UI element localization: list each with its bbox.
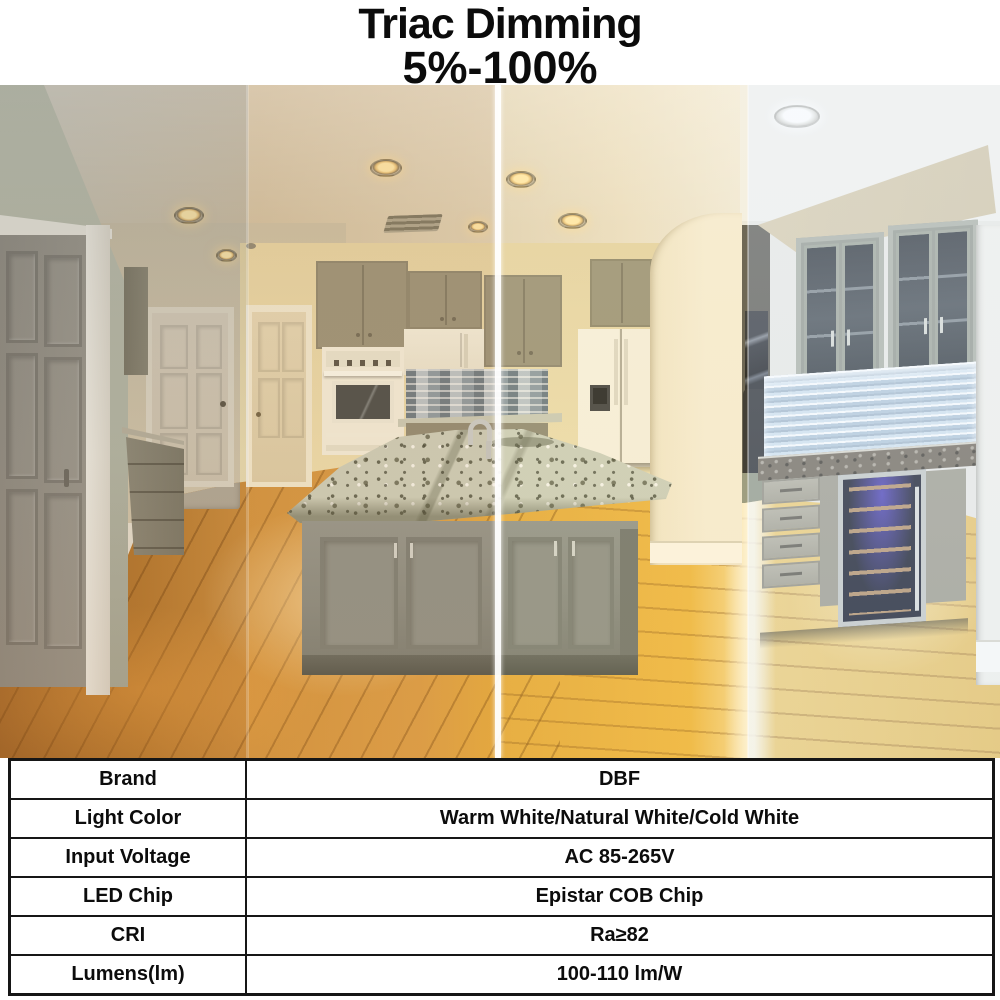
faucet	[468, 419, 494, 459]
spec-row: LED Chip Epistar COB Chip	[11, 876, 992, 915]
drawer-lines	[126, 437, 184, 555]
page-subtitle: 5%-100%	[0, 45, 1000, 90]
zone-boundary-soft	[747, 85, 749, 758]
fridge-door-split	[620, 329, 622, 467]
cabinet-door-glass	[842, 241, 877, 379]
island-toe-kick	[302, 655, 638, 675]
cabinet-knob	[356, 333, 360, 337]
wine-shelves	[849, 483, 911, 615]
microwave-door-line	[460, 333, 462, 367]
recessed-light	[506, 171, 536, 188]
door-trim	[86, 225, 110, 695]
drawer-pull	[780, 572, 802, 577]
fridge-cabinet	[590, 259, 652, 327]
door-panel	[44, 255, 82, 347]
spec-row: Input Voltage AC 85-265V	[11, 837, 992, 876]
cabinet-panel	[926, 468, 966, 603]
base-cabinet	[126, 437, 184, 555]
refrigerator	[578, 329, 650, 467]
upper-cabinet-middle	[408, 271, 482, 329]
cabinet-knob	[368, 333, 372, 337]
oven-window	[332, 381, 394, 423]
pillar-baseboard	[976, 640, 1000, 672]
door-panel	[196, 325, 222, 369]
spec-row: Light Color Warm White/Natural White/Col…	[11, 798, 992, 837]
dispenser-recess	[593, 388, 607, 404]
glass-cabinet	[888, 219, 978, 379]
spec-label-cell: CRI	[11, 917, 247, 954]
island-side-panel	[620, 529, 638, 669]
arch-column	[650, 213, 742, 565]
wall-oven	[322, 347, 404, 455]
spec-value-cell: Warm White/Natural White/Cold White	[247, 800, 992, 837]
island-handle	[394, 543, 397, 558]
pantry-door	[252, 312, 306, 482]
spec-value-cell: Ra≥82	[247, 917, 992, 954]
spec-value-cell: Epistar COB Chip	[247, 878, 992, 915]
door-panel	[196, 433, 222, 475]
oven-controls	[326, 351, 400, 367]
cabinet-knob	[529, 351, 533, 355]
spec-label-cell: LED Chip	[11, 878, 247, 915]
door-panel	[160, 373, 188, 429]
oven-buttons	[334, 360, 398, 366]
island-handle	[554, 541, 557, 556]
drawer	[762, 561, 820, 589]
door-panel	[160, 325, 188, 369]
recessed-light	[216, 249, 237, 262]
ceiling-vent	[383, 214, 443, 233]
cabinet-door-glass	[896, 231, 932, 371]
recessed-light	[558, 213, 587, 229]
wine-cooler	[838, 469, 926, 627]
fridge-handle	[614, 339, 618, 405]
upper-cabinet-left	[316, 261, 408, 349]
spec-row: CRI Ra≥82	[11, 915, 992, 954]
door-handle	[64, 469, 69, 487]
recessed-light	[370, 159, 402, 177]
spec-table: Brand DBF Light Color Warm White/Natural…	[8, 758, 995, 996]
door-panel	[6, 353, 38, 479]
header: Triac Dimming 5%-100%	[0, 0, 1000, 85]
cabinet-stile	[445, 275, 447, 325]
island-door-panel	[406, 537, 482, 649]
island-handle	[572, 541, 575, 556]
cabinet-stile	[621, 263, 623, 323]
drawer	[762, 533, 820, 561]
cabinet-handle	[924, 318, 927, 334]
door-panel	[258, 322, 280, 372]
cabinet-door-glass	[804, 243, 839, 381]
door-knob	[220, 401, 226, 407]
cabinet-knob	[517, 351, 521, 355]
cabinet-panel	[820, 475, 838, 606]
door-panel	[196, 373, 222, 429]
zone-boundary-soft	[246, 85, 249, 758]
cabinet-handle	[831, 331, 834, 347]
door-panel	[6, 251, 38, 343]
door-panel	[44, 493, 82, 649]
cabinet-knob	[452, 317, 456, 321]
drawer	[762, 505, 820, 533]
recessed-light	[174, 207, 204, 224]
oven-handle	[324, 371, 402, 376]
product-page: Triac Dimming 5%-100%	[0, 0, 1000, 1000]
door-panel	[282, 378, 304, 438]
drawer-pull	[780, 544, 802, 549]
column-baseboard	[650, 541, 742, 563]
faucet-stem	[486, 441, 491, 459]
spec-value-cell: 100-110 lm/W	[247, 956, 992, 993]
ice-dispenser	[590, 385, 610, 411]
door-panel	[282, 322, 304, 372]
door-knob	[256, 412, 261, 417]
page-title: Triac Dimming	[0, 0, 1000, 46]
spec-row: Lumens(lm) 100-110 lm/W	[11, 954, 992, 993]
product-photo	[0, 85, 1000, 758]
drawer-pull	[780, 488, 802, 493]
glass-cabinet	[796, 232, 884, 390]
closet-door	[0, 235, 86, 687]
cabinet-stile	[362, 265, 364, 345]
drawer-stack	[762, 475, 820, 597]
sink	[492, 437, 554, 447]
spec-label-cell: Lumens(lm)	[11, 956, 247, 993]
microwave-handle	[464, 334, 468, 368]
spec-value-cell: DBF	[247, 761, 992, 798]
door-panel	[258, 378, 280, 438]
spec-label-cell: Light Color	[11, 800, 247, 837]
recessed-light	[774, 105, 820, 128]
island-handle	[410, 543, 413, 558]
fridge-handle	[624, 339, 628, 405]
butler-nook	[756, 178, 1000, 675]
cabinet-door-glass	[935, 228, 971, 368]
cabinet-stile	[523, 279, 525, 363]
zone-divider-line	[495, 85, 501, 758]
cooler-handle	[915, 487, 919, 611]
cabinet-handle	[847, 329, 850, 345]
cabinet-handle	[940, 317, 943, 333]
door-panel	[6, 489, 38, 645]
cabinet-knob	[440, 317, 444, 321]
drawer	[762, 477, 820, 505]
wall-pillar	[976, 225, 1000, 685]
tile-backsplash	[406, 369, 548, 419]
spec-row: Brand DBF	[11, 761, 992, 798]
drawer-pull	[780, 516, 802, 521]
recessed-light	[468, 221, 488, 233]
spec-value-cell: AC 85-265V	[247, 839, 992, 876]
wall-cabinet	[124, 267, 148, 375]
spec-label-cell: Input Voltage	[11, 839, 247, 876]
spec-label-cell: Brand	[11, 761, 247, 798]
oven-handle	[326, 433, 400, 437]
island-base	[302, 521, 638, 675]
island-door-panel	[320, 537, 398, 649]
door-panel	[44, 357, 82, 483]
